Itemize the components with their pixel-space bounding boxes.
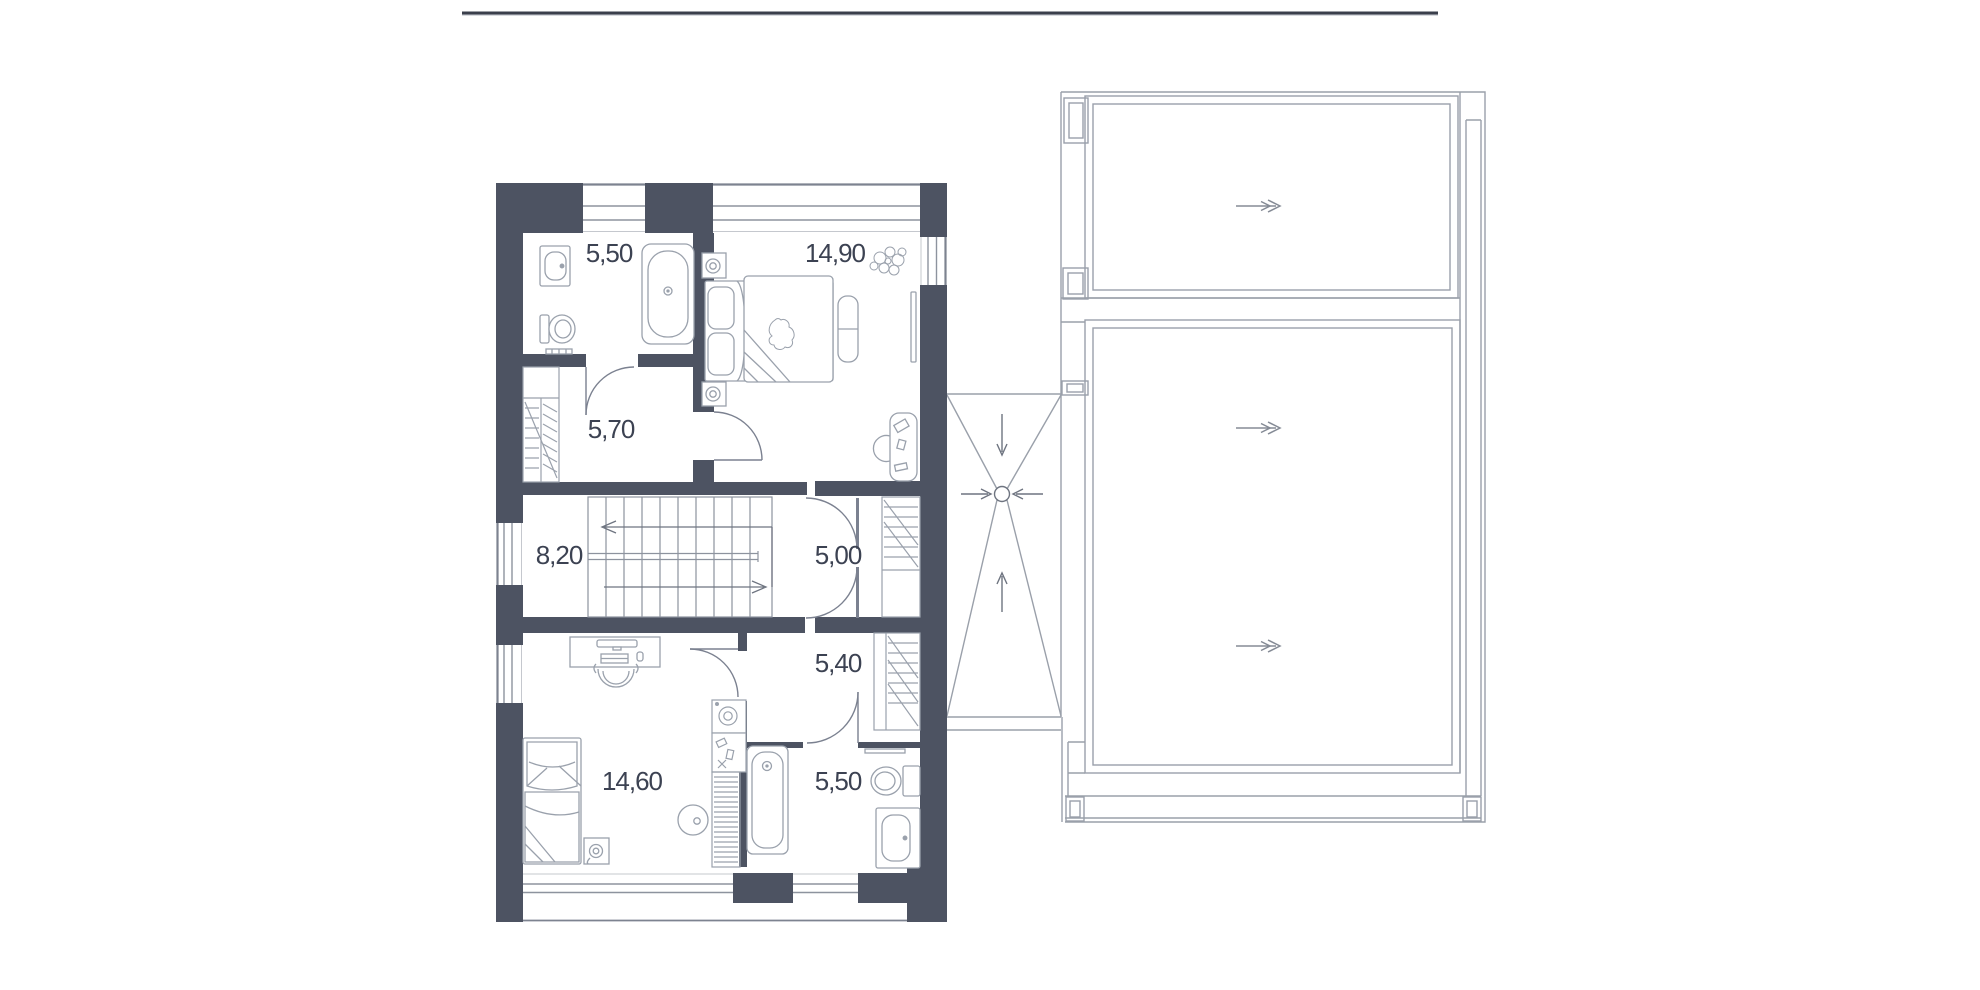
stairs-treads [606,497,750,617]
roof-drain-icon [995,487,1010,502]
wall-stairwell-bottom [523,617,805,633]
bedroom-upper-furniture [702,247,917,481]
door-corridor-bedroom [714,412,762,460]
wall-bath-upper-divider-left [521,354,586,367]
wall-top-pier [645,183,713,233]
stairs-arrow-lower-icon [604,581,766,593]
roof-bottom-band [1065,796,1481,818]
room-label-utility: 5,40 [815,648,862,678]
tv-panel-icon [911,292,916,362]
rug-round-icon [678,805,708,835]
top-rule-line [462,12,1438,15]
drain-arrow-down-icon [997,414,1007,455]
bedroom-lower-furniture [523,637,708,864]
roof-right-eave [1460,92,1481,796]
door-bath-upper [586,367,634,415]
roof-outline [1061,92,1485,822]
nightstand-bottom-icon [702,382,726,406]
blueprint-canvas: 5,50 14,90 5,70 8,20 5,00 5,40 14,60 5,5… [0,0,1980,990]
roof-panel-upper-inner [1093,104,1450,290]
bed-single-icon [523,738,581,864]
drain-arrow-left-icon [1013,489,1043,499]
window-top-glass [583,206,920,220]
wall-bottom-pier-1 [733,873,793,903]
bathroom-lower-fixtures [747,746,920,868]
drying-rack-icon [712,772,740,867]
wall-left-upper [496,183,523,523]
flat-roof-strip [947,394,1061,730]
sink-icon [540,246,570,286]
towel-radiator-icon [546,349,572,354]
window-bottom-glass [523,884,907,893]
slope-arrow-upper-icon [1236,200,1280,212]
wall-stub-utility [738,633,747,651]
stairs-direction-arrows [602,521,772,593]
desk-small-icon [890,413,917,481]
room-label-hallway: 5,00 [815,540,862,570]
roof-panel-upper-outer [1085,96,1458,298]
wall-stairwell-top [523,482,807,495]
blueprint-svg: 5,50 14,90 5,70 8,20 5,00 5,40 14,60 5,5… [0,0,1980,990]
wall-bath-lower-north-right [858,742,920,748]
room-label-bedroom-upper: 14,90 [805,238,866,268]
stairs-arrow-upper-icon [602,521,772,533]
roof-plan [1061,92,1485,822]
room-label-stair-hall: 8,20 [536,540,583,570]
room-label-bedroom-lower: 14,60 [602,766,663,796]
utility-wardrobe-icon [874,633,920,730]
wall-hall-bottom [815,617,920,633]
wall-hall-top [815,481,920,496]
room-label-corridor: 5,70 [588,414,635,444]
wall-right [920,285,947,922]
roof-panel-lower-outer [1085,320,1460,773]
top-rule [462,12,1438,16]
wall-left-mid [496,585,523,645]
towel-radiator-lower-icon [865,749,905,753]
door-bedroom-utility [690,649,738,697]
wall-top-corner-right [920,183,947,237]
wall-bottom-corner-right [907,860,947,922]
roof-gutter-line [1061,298,1460,322]
toilet-lower-icon [871,766,920,796]
corridor-wardrobe-icon [523,367,559,482]
window-right-glass [928,237,937,285]
slope-arrow-lower-icon [1236,640,1280,652]
nightstand-top-icon [702,253,726,278]
drain-arrow-right-icon [961,489,991,499]
plant-icon [870,247,906,275]
stairs [588,497,772,617]
top-rule-shadow [462,15,1438,16]
strip-edges [947,394,1061,730]
roof-panel-lower-inner [1093,328,1452,765]
room-label-bathroom-lower: 5,50 [815,766,862,796]
door-utility-bath [807,692,858,743]
bed-bench-icon [838,296,858,362]
nightstand-lower-icon [584,838,609,864]
desk-icon [570,637,660,667]
wall-left-lower [496,703,523,922]
floor-plan: 5,50 14,90 5,70 8,20 5,00 5,40 14,60 5,5… [496,183,947,922]
desk-chair-icon [873,436,890,462]
laundry-shelf-icon [712,733,746,772]
stairs-outline [588,497,772,617]
slope-arrow-middle-icon [1236,422,1280,434]
door-hall-lower [806,567,858,618]
toilet-icon [540,315,575,343]
sink-lower-icon [876,808,920,868]
washing-machine-icon [712,700,746,733]
roof-slope-arrows [1236,200,1280,652]
bathtub-lower-icon [747,746,788,854]
bed-double-icon [705,276,833,382]
room-label-bathroom-upper: 5,50 [586,238,633,268]
hallway-wardrobe-icon [882,497,920,617]
bathtub-icon [642,244,694,344]
roof-chimney-mid-left [1063,268,1088,299]
drain-arrow-up-icon [997,573,1007,612]
roof-chimney-strip-top [1062,381,1088,395]
wall-bottom-pier-2 [858,873,907,903]
strip-valley-diagonals [947,395,1061,716]
